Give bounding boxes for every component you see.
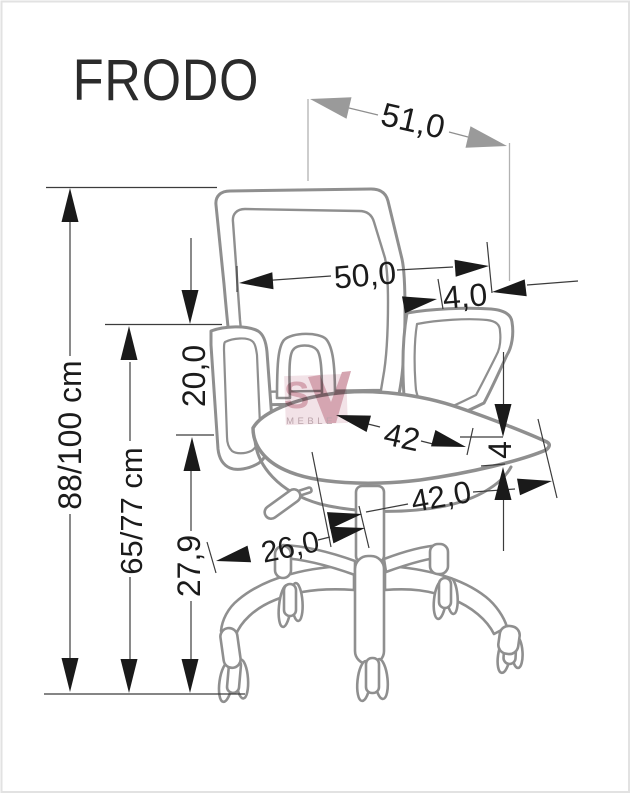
svg-text:42: 42: [381, 416, 423, 459]
svg-text:65/77 cm: 65/77 cm: [114, 447, 149, 575]
svg-text:88/100 cm: 88/100 cm: [52, 360, 88, 509]
svg-text:20,0: 20,0: [176, 345, 212, 407]
svg-text:4,0: 4,0: [441, 276, 488, 316]
svg-text:4: 4: [482, 441, 518, 459]
svg-text:FRODO: FRODO: [73, 48, 260, 113]
svg-text:50,0: 50,0: [332, 254, 397, 295]
svg-text:S: S: [284, 375, 309, 417]
svg-text:MEBLE: MEBLE: [286, 416, 336, 427]
svg-text:27,9: 27,9: [171, 535, 207, 597]
